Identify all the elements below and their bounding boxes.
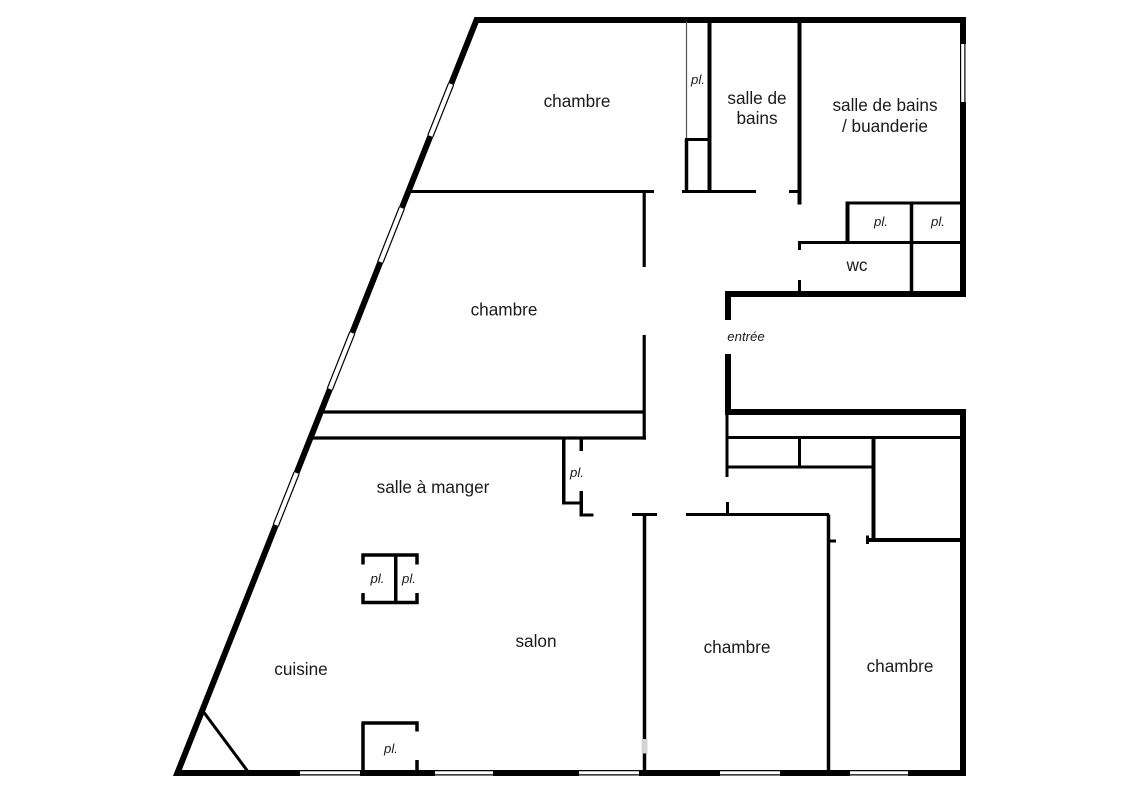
svg-text:wc: wc [845, 255, 867, 275]
svg-text:salon: salon [515, 631, 556, 651]
svg-text:salle de: salle de [727, 88, 786, 108]
svg-text:pl.: pl. [873, 214, 888, 229]
svg-text:bains: bains [736, 108, 777, 128]
svg-text:pl.: pl. [383, 741, 398, 756]
svg-text:pl.: pl. [401, 571, 416, 586]
svg-text:chambre: chambre [704, 637, 771, 657]
svg-text:entrée: entrée [727, 329, 764, 344]
svg-text:pl.: pl. [690, 72, 705, 87]
svg-text:pl.: pl. [569, 465, 584, 480]
svg-text:salle de bains: salle de bains [832, 95, 937, 115]
svg-text:chambre: chambre [544, 91, 611, 111]
svg-text:pl.: pl. [930, 214, 945, 229]
svg-text:chambre: chambre [867, 656, 934, 676]
svg-text:pl.: pl. [370, 571, 385, 586]
svg-text:chambre: chambre [471, 300, 538, 320]
svg-text:cuisine: cuisine [274, 659, 328, 679]
svg-text:/ buanderie: / buanderie [842, 116, 928, 136]
svg-text:salle à manger: salle à manger [377, 477, 490, 497]
